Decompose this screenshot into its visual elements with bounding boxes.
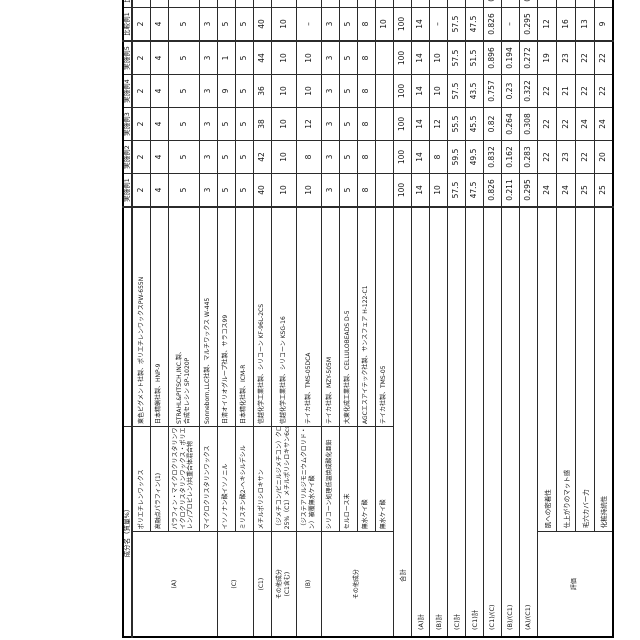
summary-label-cell: (C1)計 [465, 207, 483, 637]
summary-value-cell: 0.826 [483, 8, 501, 42]
amount-cell: 8 [357, 75, 375, 108]
text-line: メチルポリシロキサン [258, 428, 266, 529]
amount-cell: 2 [132, 174, 150, 208]
amount-cell: 3 [321, 0, 339, 8]
evaluation-score-cell: 24 [537, 174, 556, 208]
table-row: (C1)計47.549.545.543.551.547.514.5 [465, 0, 483, 637]
summary-value-cell: 0.23 [501, 75, 519, 108]
amount-cell: 7 [253, 0, 271, 8]
table-row: (A)計14141414141414 [411, 0, 429, 637]
total-label-cell: 合計 [393, 207, 411, 637]
amount-cell: 3 [321, 141, 339, 174]
text-line: ポリエチレンワックス [138, 428, 146, 529]
summary-value-cell: 12 [429, 108, 447, 141]
evaluation-score-cell: 22 [594, 41, 613, 75]
total-value-cell: 100 [393, 75, 411, 108]
amount-cell: 4 [150, 108, 168, 141]
summary-value-cell: 51.5 [465, 41, 483, 75]
summary-value-cell: 0.295 [519, 174, 537, 208]
amount-cell: 5 [168, 108, 199, 141]
component-name-cell: 高融点パラフィン(1) [150, 427, 168, 532]
supplier-header-cell [123, 207, 132, 427]
amount-cell: 5 [168, 8, 199, 42]
supplier-cell: 日本精蝋社製、HNP-9 [150, 207, 168, 427]
summary-value-cell: 14 [411, 41, 429, 75]
text-line: (C1) [258, 533, 266, 635]
amount-cell: 3 [199, 8, 217, 42]
evaluation-score-cell: 12 [537, 8, 556, 42]
summary-value-cell: 47.5 [465, 174, 483, 208]
amount-cell: 21.5 [217, 0, 235, 8]
column-header: 実施例2 [123, 141, 132, 174]
summary-value-cell: 0.69 [501, 0, 519, 8]
text-line: STRAHL&PITSCH,INC.製、 [176, 209, 184, 424]
amount-cell: 3 [199, 174, 217, 208]
summary-value-cell: 14 [411, 8, 429, 42]
amount-cell: 8 [357, 8, 375, 42]
summary-value-cell: – [429, 8, 447, 42]
text-line: 信越化学工業社製、シリコーン KSG-16 [280, 209, 288, 424]
amount-cell: 38 [253, 108, 271, 141]
summary-value-cell: 0.826 [483, 174, 501, 208]
group-label-cell: (B) [296, 532, 321, 637]
amount-cell: 5 [339, 0, 357, 8]
text-line: （ジメチコン/ビニルジメチコン）クロスポリマー [276, 428, 284, 529]
amount-cell: 4 [150, 174, 168, 208]
text-line: Sonneborn,LLC社製、マルチワックス W-445 [204, 209, 212, 424]
amount-cell: 10 [271, 8, 296, 42]
amount-cell: 9 [217, 75, 235, 108]
evaluation-label-cell: 化粧持続性 [594, 207, 613, 532]
supplier-cell: Sonneborn,LLC社製、マルチワックス W-445 [199, 207, 217, 427]
evaluation-score-cell: 14 [556, 0, 575, 8]
text-line: その他成分 [276, 533, 284, 635]
amount-cell [375, 0, 393, 8]
total-value-cell: 100 [393, 174, 411, 208]
amount-cell: 10 [375, 8, 393, 42]
amount-cell: 8 [357, 0, 375, 8]
group-label-cell: その他成分 [321, 532, 393, 637]
text-line: セルロース末 [344, 428, 352, 529]
evaluation-score-cell: 13 [575, 0, 594, 8]
summary-value-cell: 47.5 [465, 8, 483, 42]
summary-value-cell: 49.5 [465, 141, 483, 174]
summary-value-cell: 57.5 [447, 0, 465, 8]
text-line: 合成セレシン SP-1020P [184, 209, 192, 424]
amount-cell: 40 [253, 8, 271, 42]
table-row: (B)計108121010–10 [429, 0, 447, 637]
text-line: 無水ケイ酸 [362, 428, 370, 529]
total-value-cell: 100 [393, 41, 411, 75]
evaluation-score-cell: 24 [556, 174, 575, 208]
component-name-cell: ポリエチレンワックス [132, 427, 150, 532]
column-header: 比較例1 [123, 8, 132, 42]
table-header: 成分名（質量%） 実施例1実施例2実施例3実施例4実施例5比較例1比較例2 [123, 0, 132, 637]
amount-cell: 3 [321, 41, 339, 75]
column-header: 比較例2 [123, 0, 132, 8]
component-name-header: 成分名（質量%） [123, 427, 132, 638]
amount-cell: 5 [235, 108, 253, 141]
summary-value-cell: 10 [429, 75, 447, 108]
component-name-cell: イソノナン酸イソノニル [217, 427, 235, 532]
amount-cell: 5 [339, 8, 357, 42]
composition-table: 成分名（質量%） 実施例1実施例2実施例3実施例4実施例5比較例1比較例2 (A… [122, 0, 614, 638]
amount-cell: 2 [132, 0, 150, 8]
amount-cell: 21.5 [235, 0, 253, 8]
summary-label-cell: (B)計 [429, 207, 447, 637]
amount-cell: 5 [168, 0, 199, 8]
text-line: ン）被覆無水ケイ酸 [309, 428, 317, 529]
table-row: (B)（ジステアリルジモニウムクロリド・アモジメチコン）被覆無水ケイ酸テイカ社製… [296, 0, 321, 637]
amount-cell: 4 [150, 0, 168, 8]
summary-value-cell: 0.211 [501, 174, 519, 208]
amount-cell: 10 [271, 0, 296, 8]
summary-value-cell: 14.5 [465, 0, 483, 8]
text-line: レン/プロピレン)共重合体混合物 [187, 428, 195, 529]
amount-cell: 8 [296, 141, 321, 174]
table-row: その他成分(C1含む)（ジメチコン/ビニルジメチコン）クロスポリマー25%（C1… [271, 0, 296, 637]
text-line: イソノナン酸イソノニル [222, 428, 230, 529]
summary-value-cell: 0.295 [519, 8, 537, 42]
table-row: (C1)/(C)0.8260.8320.820.7570.8960.8260.2… [483, 0, 501, 637]
component-name-cell: （ジステアリルジモニウムクロリド・アモジメチコン）被覆無水ケイ酸 [296, 427, 321, 532]
evaluation-score-cell: 9 [594, 8, 613, 42]
scanned-document-page: 成分名（質量%） 実施例1実施例2実施例3実施例4実施例5比較例1比較例2 (A… [0, 0, 640, 640]
amount-cell: 10 [271, 41, 296, 75]
amount-cell: 5 [235, 141, 253, 174]
component-name-cell: パラフィン・マイクロクリスタリンワックス・水添マイクロクリスタリンワックス・ポリ… [168, 427, 199, 532]
group-label-cell: その他成分(C1含む) [271, 532, 296, 637]
evaluation-score-cell: 23 [556, 41, 575, 75]
column-header: 実施例5 [123, 41, 132, 75]
supplier-cell: STRAHL&PITSCH,INC.製、合成セレシン SP-1020P [168, 207, 199, 427]
text-line: 高融点パラフィン(1) [155, 428, 163, 529]
amount-cell: 4 [150, 41, 168, 75]
amount-cell: 44 [253, 41, 271, 75]
text-line: 信越化学工業社製、シリコーン KF-96L-2CS [258, 209, 266, 424]
text-line: (C) [231, 533, 239, 635]
amount-cell: 8 [357, 174, 375, 208]
summary-value-cell: 0.832 [483, 141, 501, 174]
text-line: 東色ピグメント社製、ポリエチレンワックスPW-655N [138, 209, 146, 424]
evaluation-score-cell: 25 [575, 174, 594, 208]
amount-cell: 2 [132, 41, 150, 75]
amount-cell: 5 [339, 174, 357, 208]
column-header: 実施例4 [123, 75, 132, 108]
amount-cell: 5 [235, 75, 253, 108]
table-row: (C1)メチルポリシロキサン信越化学工業社製、シリコーン KF-96L-2CS4… [253, 0, 271, 637]
summary-value-cell: 0.162 [501, 141, 519, 174]
amount-cell: 3 [321, 174, 339, 208]
component-name-cell: 無水ケイ酸 [357, 427, 375, 532]
amount-cell: 10 [271, 108, 296, 141]
amount-cell [375, 75, 393, 108]
amount-cell [375, 141, 393, 174]
evaluation-score-cell: 24 [575, 108, 594, 141]
table-row: (A)ポリエチレンワックス東色ピグメント社製、ポリエチレンワックスPW-655N… [132, 0, 150, 637]
evaluation-score-cell: 11 [594, 0, 613, 8]
amount-cell: 5 [217, 174, 235, 208]
text-line: 日本精蝋社製、HNP-9 [155, 209, 163, 424]
amount-cell: 5 [339, 75, 357, 108]
amount-cell: 10 [296, 75, 321, 108]
amount-cell: 4 [150, 75, 168, 108]
column-header: 実施例3 [123, 108, 132, 141]
summary-value-cell: 14 [411, 108, 429, 141]
supplier-cell: テイカ社製、TMS-05 [375, 207, 393, 427]
amount-cell: 5 [217, 108, 235, 141]
evaluation-score-cell: 22 [537, 75, 556, 108]
amount-cell: 1 [217, 41, 235, 75]
table-row: (C)計57.559.555.557.557.557.557.5 [447, 0, 465, 637]
summary-value-cell: 0.252 [483, 0, 501, 8]
amount-cell: 2 [132, 108, 150, 141]
text-line: (C1含む) [284, 533, 292, 635]
amount-cell: 3 [199, 0, 217, 8]
amount-cell: 8 [357, 141, 375, 174]
component-name-cell: ミリスチン酸2-ヘキシルデシル [235, 427, 253, 532]
text-line: 無水ケイ酸 [380, 428, 388, 529]
evaluation-score-cell: 21 [556, 75, 575, 108]
header-row: 成分名（質量%） 実施例1実施例2実施例3実施例4実施例5比較例1比較例2 [123, 0, 132, 637]
total-value-cell: 100 [393, 141, 411, 174]
table-row: その他成分シリコーン処理低温焼成酸化亜鉛テイカ社製、MZY-505M333333… [321, 0, 339, 637]
text-line: AGCエスアイテック社製、サンスフェア H-122-C1 [362, 209, 370, 424]
amount-cell: 5 [217, 8, 235, 42]
summary-value-cell: 0.322 [519, 75, 537, 108]
amount-cell: 3 [199, 75, 217, 108]
evaluation-label-cell: 仕上がりのマット感 [556, 207, 575, 532]
amount-cell [375, 108, 393, 141]
amount-cell: 2 [132, 75, 150, 108]
supplier-cell: 日清オイリオグループ社製、サラコス99 [217, 207, 235, 427]
amount-cell: 3 [199, 41, 217, 75]
amount-cell: 5 [235, 41, 253, 75]
evaluation-score-cell: 24 [594, 108, 613, 141]
total-value-cell: 100 [393, 108, 411, 141]
summary-value-cell: 8 [429, 141, 447, 174]
amount-cell: 5 [217, 141, 235, 174]
summary-value-cell: 0.264 [501, 108, 519, 141]
component-name-cell: メチルポリシロキサン [253, 427, 271, 532]
amount-cell: 3 [199, 108, 217, 141]
amount-cell: 4 [150, 8, 168, 42]
text-line: （ジステアリルジモニウムクロリド・アモジメチコ [301, 428, 309, 529]
summary-label-cell: (A)/(C1) [519, 207, 537, 637]
summary-label-cell: (C)計 [447, 207, 465, 637]
supplier-cell: テイカ社製、MZY-505M [321, 207, 339, 427]
group-label-cell: (A) [132, 532, 217, 637]
evaluation-score-cell: 22 [575, 41, 594, 75]
supplier-cell: 信越化学工業社製、シリコーン KF-96L-2CS [253, 207, 271, 427]
evaluation-score-cell: 22 [537, 108, 556, 141]
evaluation-score-cell: 23 [556, 141, 575, 174]
component-name-cell: セルロース末 [339, 427, 357, 532]
summary-value-cell: 57.5 [447, 174, 465, 208]
supplier-cell: テイカ社製、TMS-05DCA [296, 207, 321, 427]
total-value-cell: 100 [393, 8, 411, 42]
text-line: 日清オイリオグループ社製、サラコス99 [222, 209, 230, 424]
amount-cell: 3 [321, 108, 339, 141]
summary-value-cell: 0.966 [519, 0, 537, 8]
rotated-table-container: 成分名（質量%） 実施例1実施例2実施例3実施例4実施例5比較例1比較例2 (A… [122, 5, 619, 638]
amount-cell: 10 [296, 174, 321, 208]
amount-cell: 10 [271, 141, 296, 174]
summary-value-cell: 10 [429, 174, 447, 208]
text-line: ミリスチン酸2-ヘキシルデシル [240, 428, 248, 529]
amount-cell: 2 [132, 8, 150, 42]
evaluation-score-cell: 20 [594, 141, 613, 174]
text-line: パラフィン・マイクロクリスタリンワックス・水添マ [172, 428, 180, 529]
summary-value-cell: 45.5 [465, 108, 483, 141]
summary-value-cell: 14 [411, 0, 429, 8]
amount-cell: 42 [253, 141, 271, 174]
amount-cell: 5 [168, 41, 199, 75]
amount-cell: 5 [168, 75, 199, 108]
summary-value-cell: 0.82 [483, 108, 501, 141]
supplier-cell: 信越化学工業社製、シリコーン KSG-16 [271, 207, 296, 427]
evaluation-score-cell: 22 [556, 108, 575, 141]
amount-cell: 3 [199, 141, 217, 174]
amount-cell: 4 [150, 141, 168, 174]
table-row: 評価肌への密着性24222222191213 [537, 0, 556, 637]
total-value-cell: 100 [393, 0, 411, 8]
evaluation-score-cell: 22 [575, 75, 594, 108]
amount-cell [375, 41, 393, 75]
summary-value-cell: 43.5 [465, 75, 483, 108]
amount-cell: 2 [132, 141, 150, 174]
summary-value-cell: 0.283 [519, 141, 537, 174]
summary-value-cell: 59.5 [447, 141, 465, 174]
summary-value-cell: 0.194 [501, 41, 519, 75]
supplier-cell: AGCエスアイテック社製、サンスフェア H-122-C1 [357, 207, 375, 427]
summary-value-cell: 55.5 [447, 108, 465, 141]
summary-value-cell: 14 [411, 75, 429, 108]
text-line: テイカ社製、MZY-505M [326, 209, 334, 424]
component-name-cell: マイクロクリスタリンワックス [199, 427, 217, 532]
summary-label-cell: (B)/(C1) [501, 207, 519, 637]
amount-cell: – [296, 8, 321, 42]
amount-cell: 5 [339, 141, 357, 174]
evaluation-score-cell: 22 [537, 141, 556, 174]
evaluation-score-cell: 16 [556, 8, 575, 42]
column-header: 実施例1 [123, 174, 132, 208]
table-row: 合計100100100100100100100 [393, 0, 411, 637]
amount-cell: 8 [357, 41, 375, 75]
summary-value-cell: 57.5 [447, 75, 465, 108]
text-line: (A) [171, 533, 179, 635]
summary-label-cell: (C1)/(C) [483, 207, 501, 637]
text-line: 日本精化社製、ICM-R [240, 209, 248, 424]
supplier-cell: 東色ピグメント社製、ポリエチレンワックスPW-655N [132, 207, 150, 427]
evaluation-group-cell: 評価 [537, 532, 613, 637]
amount-cell: 10 [271, 75, 296, 108]
component-name-cell: シリコーン処理低温焼成酸化亜鉛 [321, 427, 339, 532]
summary-value-cell: 10 [429, 0, 447, 8]
amount-cell: 10 [296, 0, 321, 8]
summary-value-cell: 57.5 [447, 8, 465, 42]
evaluation-label-cell: 毛穴カバー力 [575, 207, 594, 532]
table-row: (C)イソノナン酸イソノニル日清オイリオグループ社製、サラコス995559152… [217, 0, 235, 637]
amount-cell: 5 [168, 174, 199, 208]
table-row: (B)/(C1)0.2110.1620.2640.230.194–0.69 [501, 0, 519, 637]
summary-value-cell: – [501, 8, 519, 42]
amount-cell: 5 [235, 174, 253, 208]
summary-value-cell: 14 [411, 174, 429, 208]
amount-cell: 5 [339, 108, 357, 141]
amount-cell: 40 [253, 174, 271, 208]
amount-cell: 5 [339, 41, 357, 75]
text-line: 大東化成工業社製、CELLULOBEADS D-5 [344, 209, 352, 424]
amount-cell: 3 [321, 75, 339, 108]
amount-cell: 10 [271, 174, 296, 208]
text-line: テイカ社製、TMS-05DCA [305, 209, 313, 424]
evaluation-score-cell: 25 [594, 174, 613, 208]
summary-value-cell: 14 [411, 141, 429, 174]
summary-value-cell: 0.308 [519, 108, 537, 141]
amount-cell: 5 [235, 8, 253, 42]
summary-value-cell: 0.896 [483, 41, 501, 75]
evaluation-score-cell: 13 [537, 0, 556, 8]
amount-cell: 8 [357, 108, 375, 141]
evaluation-score-cell: 22 [575, 141, 594, 174]
text-line: 25%（C1）メチルポリシロキサン6cs混液 [284, 428, 292, 529]
text-line: (B) [305, 533, 313, 635]
supplier-cell: 日本精化社製、ICM-R [235, 207, 253, 427]
summary-value-cell: 0.757 [483, 75, 501, 108]
table-body: (A)ポリエチレンワックス東色ピグメント社製、ポリエチレンワックスPW-655N… [132, 0, 613, 637]
text-line: テイカ社製、TMS-05 [380, 209, 388, 424]
summary-label-cell: (A)計 [411, 207, 429, 637]
group-label-cell: (C) [217, 532, 253, 637]
summary-value-cell: 10 [429, 41, 447, 75]
evaluation-label-cell: 肌への密着性 [537, 207, 556, 532]
amount-cell: 5 [168, 141, 199, 174]
amount-cell: 36 [253, 75, 271, 108]
evaluation-score-cell: 19 [537, 41, 556, 75]
amount-cell: 12 [296, 108, 321, 141]
text-line: マイクロクリスタリンワックス [204, 428, 212, 529]
summary-value-cell: 0.272 [519, 41, 537, 75]
evaluation-score-cell: 13 [575, 8, 594, 42]
component-name-cell: 無水ケイ酸 [375, 427, 393, 532]
component-name-cell: （ジメチコン/ビニルジメチコン）クロスポリマー25%（C1）メチルポリシロキサン… [271, 427, 296, 532]
amount-cell: 3 [321, 8, 339, 42]
amount-cell [375, 174, 393, 208]
table-row: (A)/(C1)0.2950.2830.3080.3220.2720.2950.… [519, 0, 537, 637]
summary-value-cell: 57.5 [447, 41, 465, 75]
evaluation-score-cell: 22 [594, 75, 613, 108]
group-label-cell: (C1) [253, 532, 271, 637]
supplier-cell: 大東化成工業社製、CELLULOBEADS D-5 [339, 207, 357, 427]
text-line: その他成分 [353, 533, 361, 635]
amount-cell: 10 [296, 41, 321, 75]
text-line: シリコーン処理低温焼成酸化亜鉛 [326, 428, 334, 529]
